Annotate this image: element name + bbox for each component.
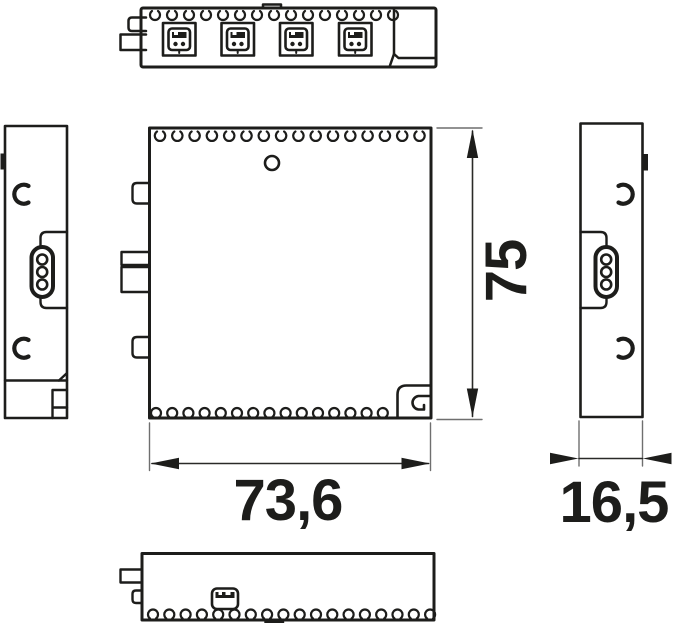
front-view-body	[150, 128, 432, 418]
vent-perforation-icon-row	[148, 610, 435, 619]
right-side-view	[581, 124, 649, 418]
depth-dimension-label: 16,5	[560, 474, 669, 532]
vent-perforation-icon-row	[150, 11, 398, 20]
crescent-cutout-icon	[619, 185, 633, 204]
top-view	[121, 5, 437, 68]
left-small-tab	[129, 18, 147, 32]
mounting-slot-icon	[398, 386, 432, 418]
crescent-cutout-icon	[14, 339, 28, 358]
front-view	[122, 128, 432, 418]
crescent-cutout-icon	[619, 339, 633, 358]
mini-usb-port-icon	[212, 589, 238, 610]
three-pin-oval-connector-icon	[32, 247, 54, 297]
arrow-down-icon	[467, 389, 478, 418]
arrow-inward-right-icon	[550, 453, 579, 464]
vent-perforation-icon-row-bottom	[151, 408, 388, 417]
end-cap-step	[394, 54, 435, 58]
arrow-right-icon	[402, 458, 431, 469]
socket-port-icon-2	[222, 23, 255, 56]
socket-port-icon-3	[280, 23, 313, 56]
foot-latch	[53, 390, 68, 418]
left-side-view	[1, 126, 68, 418]
led-hole	[265, 156, 279, 170]
three-pin-oval-connector-icon	[596, 247, 618, 297]
left-connector-block	[122, 252, 150, 292]
vent-perforation-icon-row-top	[155, 132, 425, 141]
left-tab-upper	[133, 183, 150, 204]
arrow-up-icon	[467, 130, 478, 159]
socket-port-icon-1	[163, 23, 196, 56]
left-large-tab	[121, 570, 143, 583]
end-cap-divider	[390, 9, 394, 66]
bottom-view	[121, 554, 436, 623]
crescent-cutout-icon	[14, 185, 28, 204]
arrow-left-icon	[151, 458, 180, 469]
height-dimension-label: 75	[478, 240, 536, 303]
technical-drawing: 75 73,6 16,5	[0, 0, 687, 623]
arrow-inward-left-icon	[643, 453, 672, 464]
socket-port-icon-4	[339, 23, 372, 56]
rail-clip-tab	[643, 154, 649, 171]
rail-clip-tab	[1, 154, 7, 170]
width-dimension-label: 73,6	[234, 472, 343, 530]
left-tab-lower	[133, 337, 150, 358]
